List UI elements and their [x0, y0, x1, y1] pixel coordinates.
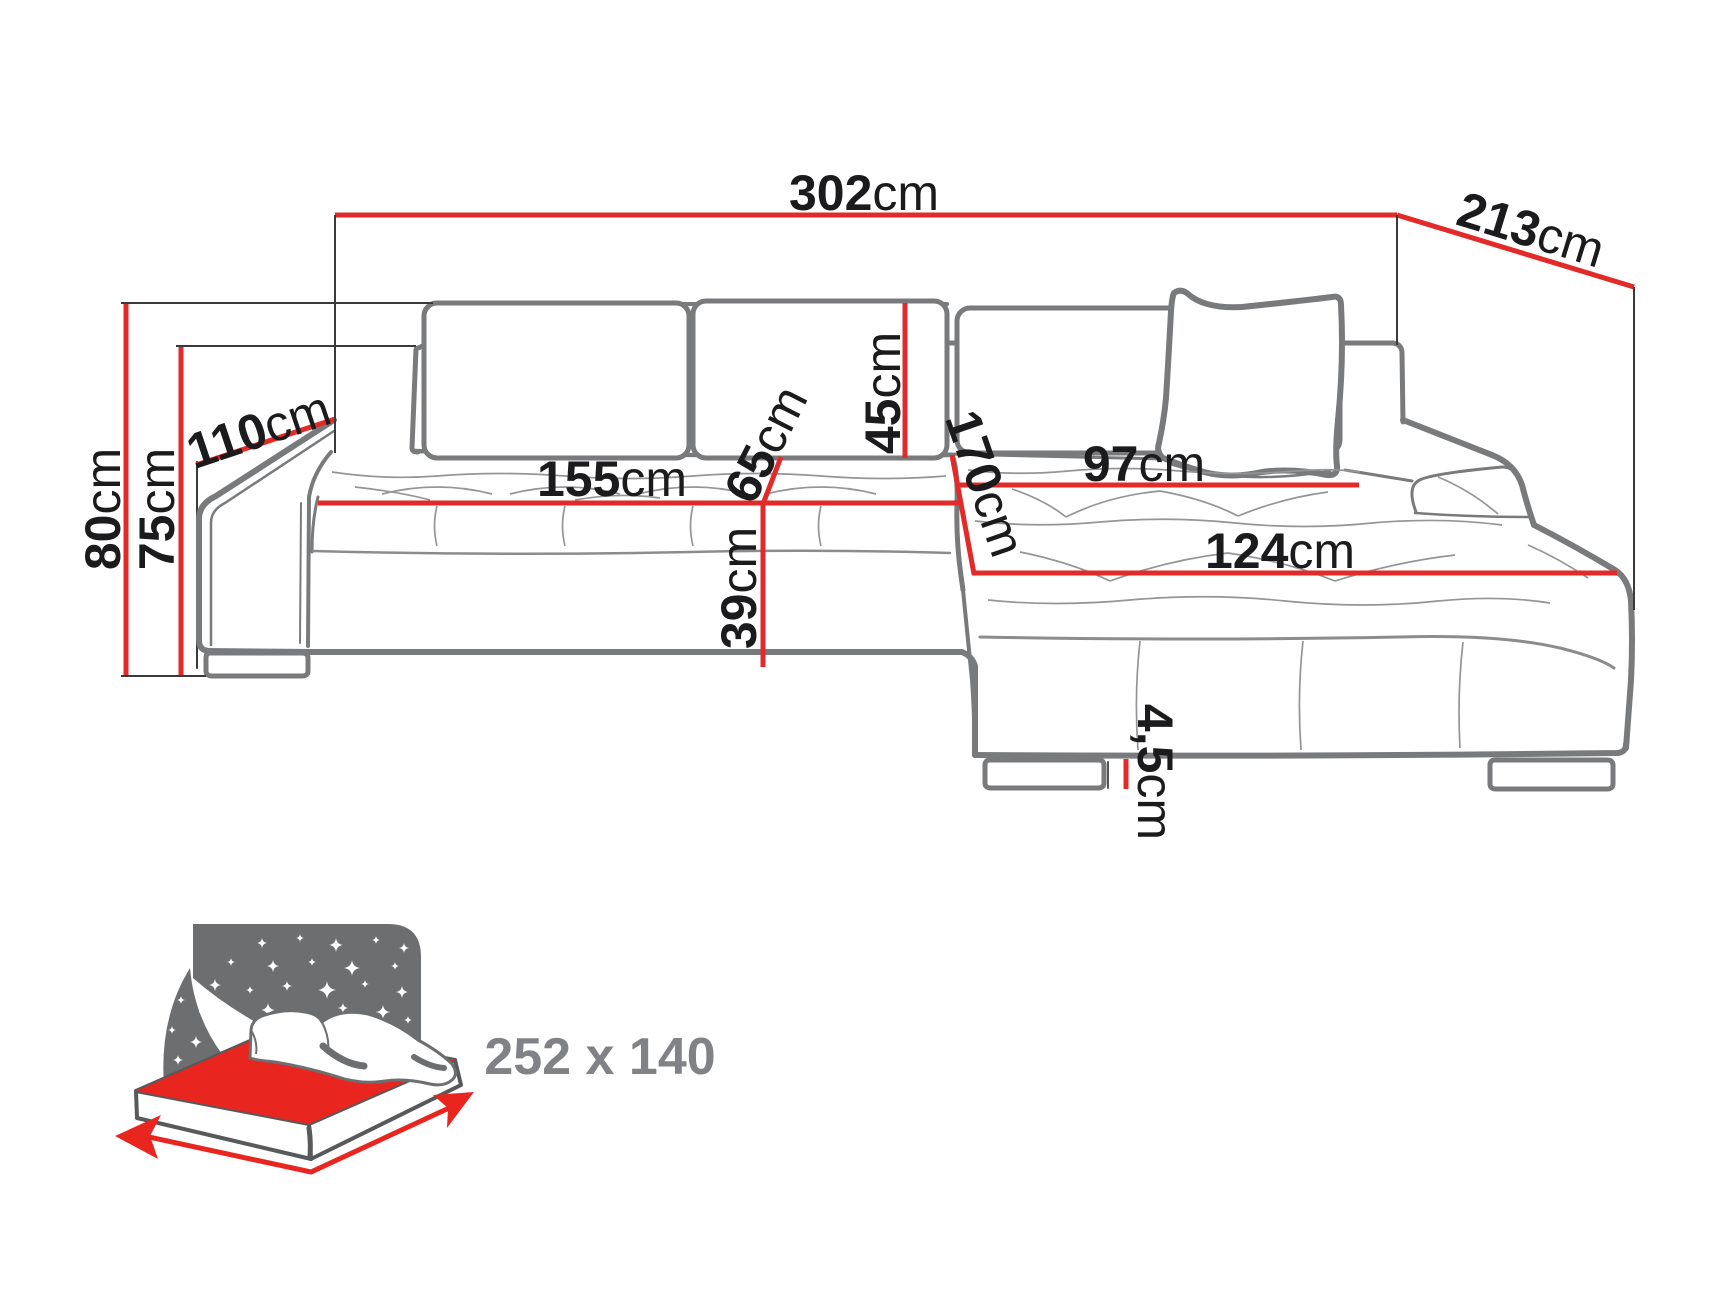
svg-text:252 x 140: 252 x 140: [484, 1028, 715, 1086]
svg-text:75cm: 75cm: [129, 448, 185, 570]
svg-text:302cm: 302cm: [789, 165, 939, 221]
svg-text:39cm: 39cm: [711, 527, 767, 649]
svg-text:124cm: 124cm: [1205, 523, 1355, 579]
svg-text:4,5cm: 4,5cm: [1127, 704, 1183, 840]
svg-text:155cm: 155cm: [537, 451, 687, 507]
svg-text:80cm: 80cm: [75, 448, 131, 570]
svg-text:45cm: 45cm: [855, 332, 911, 454]
svg-text:97cm: 97cm: [1083, 436, 1205, 492]
